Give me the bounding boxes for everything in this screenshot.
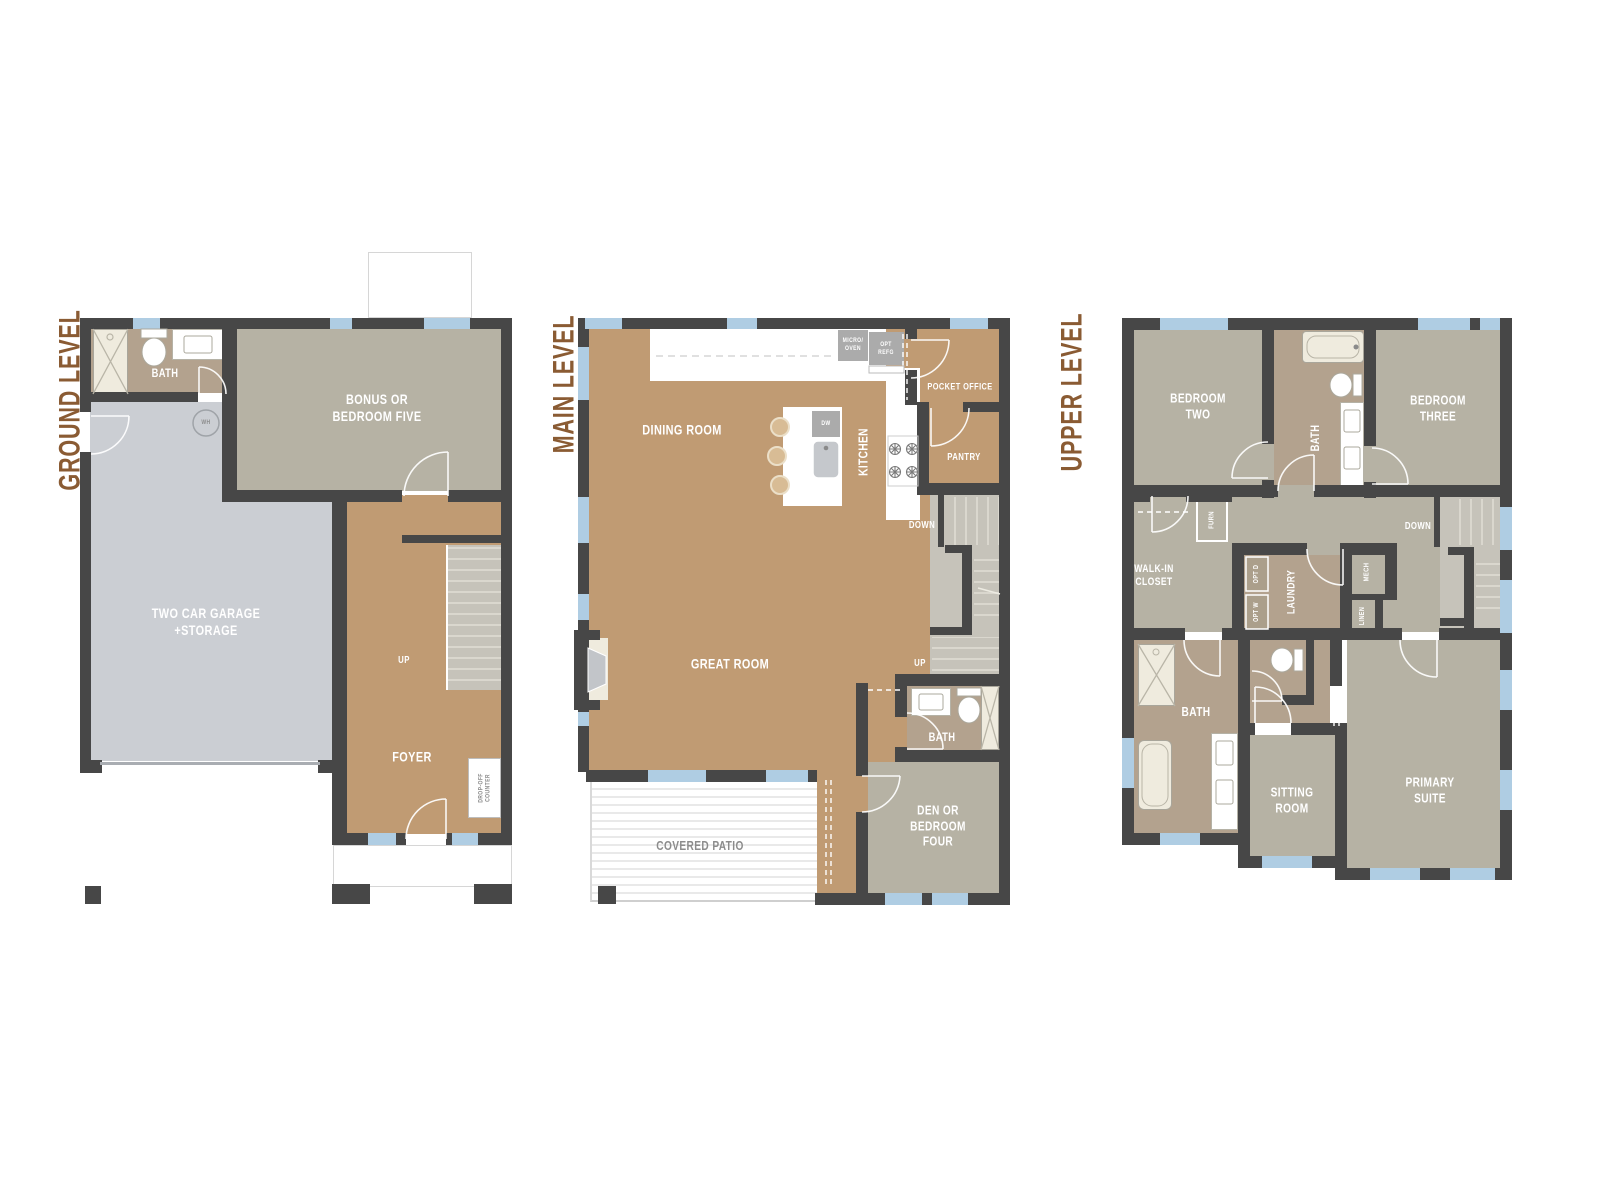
label-bath: BATH — [929, 730, 956, 744]
stairs-ground — [447, 545, 502, 690]
window — [578, 497, 589, 543]
sink-counter-icon — [911, 688, 951, 716]
ground-level-title: GROUND LEVEL — [53, 309, 87, 490]
window — [766, 770, 808, 782]
wall — [1262, 326, 1274, 444]
wall — [1434, 497, 1440, 547]
wall — [706, 770, 766, 782]
wall — [905, 370, 917, 405]
window — [1122, 738, 1134, 788]
window — [330, 318, 352, 329]
wall — [895, 674, 907, 717]
wall — [1232, 543, 1244, 640]
floorplan-canvas: GROUND LEVEL MAIN LEVEL UPPER LEVEL BATH… — [0, 0, 1600, 1200]
wall — [90, 392, 198, 402]
wall — [1385, 543, 1397, 600]
window — [1418, 318, 1470, 330]
wall — [1238, 723, 1250, 868]
label-primary-bath: BATH — [1182, 704, 1211, 720]
room-garage — [90, 402, 222, 503]
label-micro: MICRO/ OVEN — [843, 337, 864, 353]
window — [1500, 580, 1512, 633]
window — [585, 318, 622, 329]
window — [1500, 670, 1512, 710]
porch-post — [474, 884, 512, 904]
wall — [1335, 723, 1347, 868]
window — [1160, 318, 1228, 330]
bath-hall-wc — [1250, 632, 1330, 723]
wall — [1282, 695, 1314, 705]
room-primary-suite — [1347, 640, 1500, 868]
wall — [895, 750, 1010, 762]
tub-icon — [1302, 331, 1364, 363]
label-bath-upper: BATH — [1309, 425, 1323, 452]
window — [578, 594, 589, 620]
label-mech: MECH — [1363, 563, 1372, 582]
wall — [1340, 543, 1352, 640]
wall — [586, 770, 648, 782]
window — [133, 318, 160, 329]
label-kitchen: KITCHEN — [857, 428, 872, 476]
wall — [1440, 618, 1474, 626]
window — [368, 833, 396, 845]
shower-icon — [93, 329, 128, 394]
wall — [962, 545, 972, 635]
main-level-title: MAIN LEVEL — [547, 315, 581, 454]
wall — [856, 683, 868, 753]
wall — [80, 760, 102, 773]
label-patio: COVERED PATIO — [656, 838, 744, 854]
wall — [1186, 490, 1232, 502]
label-dining: DINING ROOM — [642, 422, 722, 439]
porch-post — [332, 884, 370, 904]
label-down: DOWN — [1405, 521, 1431, 533]
wall — [1448, 547, 1474, 555]
window — [1480, 318, 1500, 330]
window — [1262, 856, 1312, 868]
stairs-down-flight — [1450, 499, 1500, 545]
label-garage: TWO CAR GARAGE +STORAGE — [152, 605, 261, 639]
wall — [1122, 490, 1150, 502]
label-up: UP — [398, 655, 410, 667]
wall — [856, 750, 868, 776]
wall — [917, 483, 1010, 495]
wall — [1238, 640, 1250, 735]
window — [885, 893, 922, 905]
label-bedroom-three: BEDROOM THREE — [1410, 392, 1466, 423]
wall — [80, 452, 91, 773]
wall — [1376, 485, 1500, 497]
label-drop-off: DROP-OFF COUNTER — [478, 773, 493, 803]
label-refg: OPT REFG — [878, 341, 894, 357]
garage-door-line — [100, 762, 320, 765]
corner-post — [85, 886, 101, 904]
tub-icon — [1138, 740, 1172, 810]
label-walkin: WALK-IN CLOSET — [1134, 563, 1173, 589]
wall — [402, 535, 502, 543]
label-sitting: SITTING ROOM — [1271, 784, 1314, 815]
window — [452, 833, 478, 845]
wall — [332, 495, 347, 845]
wall — [963, 402, 1005, 412]
window — [1500, 507, 1512, 550]
label-great-room: GREAT ROOM — [691, 656, 769, 673]
label-bonus: BONUS OR BEDROOM FIVE — [332, 391, 421, 425]
sink-counter-icon — [172, 329, 226, 360]
porch-outline — [333, 845, 512, 887]
label-primary-suite: PRIMARY SUITE — [1405, 774, 1454, 805]
label-den: DEN OR BEDROOM FOUR — [910, 803, 966, 850]
wall — [938, 495, 944, 547]
deck-outline — [368, 252, 472, 318]
wall — [945, 545, 972, 553]
window — [648, 770, 706, 782]
label-down: DOWN — [909, 520, 935, 532]
label-opt-w: OPT W — [1253, 602, 1261, 622]
optional-door-dashes — [1334, 686, 1339, 726]
window — [950, 318, 988, 329]
wall — [1464, 547, 1474, 628]
wall — [501, 318, 512, 845]
wall — [1364, 326, 1376, 446]
window — [578, 712, 589, 726]
label-opt-d: OPT D — [1253, 565, 1261, 584]
wall — [1314, 485, 1376, 497]
wall — [808, 770, 817, 782]
wall — [448, 490, 512, 502]
wall — [1330, 632, 1342, 686]
label-dw: DW — [821, 420, 830, 428]
wall — [222, 328, 237, 502]
window — [1370, 868, 1420, 880]
wall — [905, 329, 917, 339]
wall — [1306, 632, 1314, 695]
label-wh: WH — [201, 419, 210, 427]
label-bath: BATH — [152, 366, 179, 380]
stairs-mid-flight — [1476, 557, 1500, 618]
wall — [856, 812, 868, 893]
label-bedroom-two: BEDROOM TWO — [1170, 390, 1226, 421]
vanity-icon — [1340, 402, 1364, 486]
window — [1450, 868, 1495, 880]
window — [932, 893, 968, 905]
patio-post — [598, 886, 616, 904]
wall — [917, 402, 929, 490]
window — [424, 318, 470, 329]
wall — [1262, 485, 1278, 497]
window — [727, 318, 757, 329]
stairs-down-flight — [945, 497, 1000, 545]
label-pocket-office: POCKET OFFICE — [927, 381, 992, 392]
vanity-icon — [1211, 733, 1238, 830]
shower-icon — [1138, 644, 1175, 706]
label-up: UP — [914, 658, 926, 670]
window — [1500, 770, 1512, 810]
label-pantry: PANTRY — [947, 452, 981, 464]
upper-level-title: UPPER LEVEL — [1055, 313, 1089, 472]
label-laundry: LAUNDRY — [1286, 570, 1299, 614]
window — [1160, 833, 1200, 845]
label-foyer: FOYER — [392, 749, 432, 766]
wall — [930, 627, 972, 635]
wall — [578, 318, 1010, 329]
label-furn: FURN — [1208, 511, 1217, 529]
stairs-mid-flight — [974, 553, 1000, 625]
shower-icon — [981, 686, 999, 750]
wall — [905, 674, 1010, 686]
wall — [222, 490, 402, 502]
label-linen: LINEN — [1359, 607, 1367, 625]
wall — [1122, 628, 1185, 640]
